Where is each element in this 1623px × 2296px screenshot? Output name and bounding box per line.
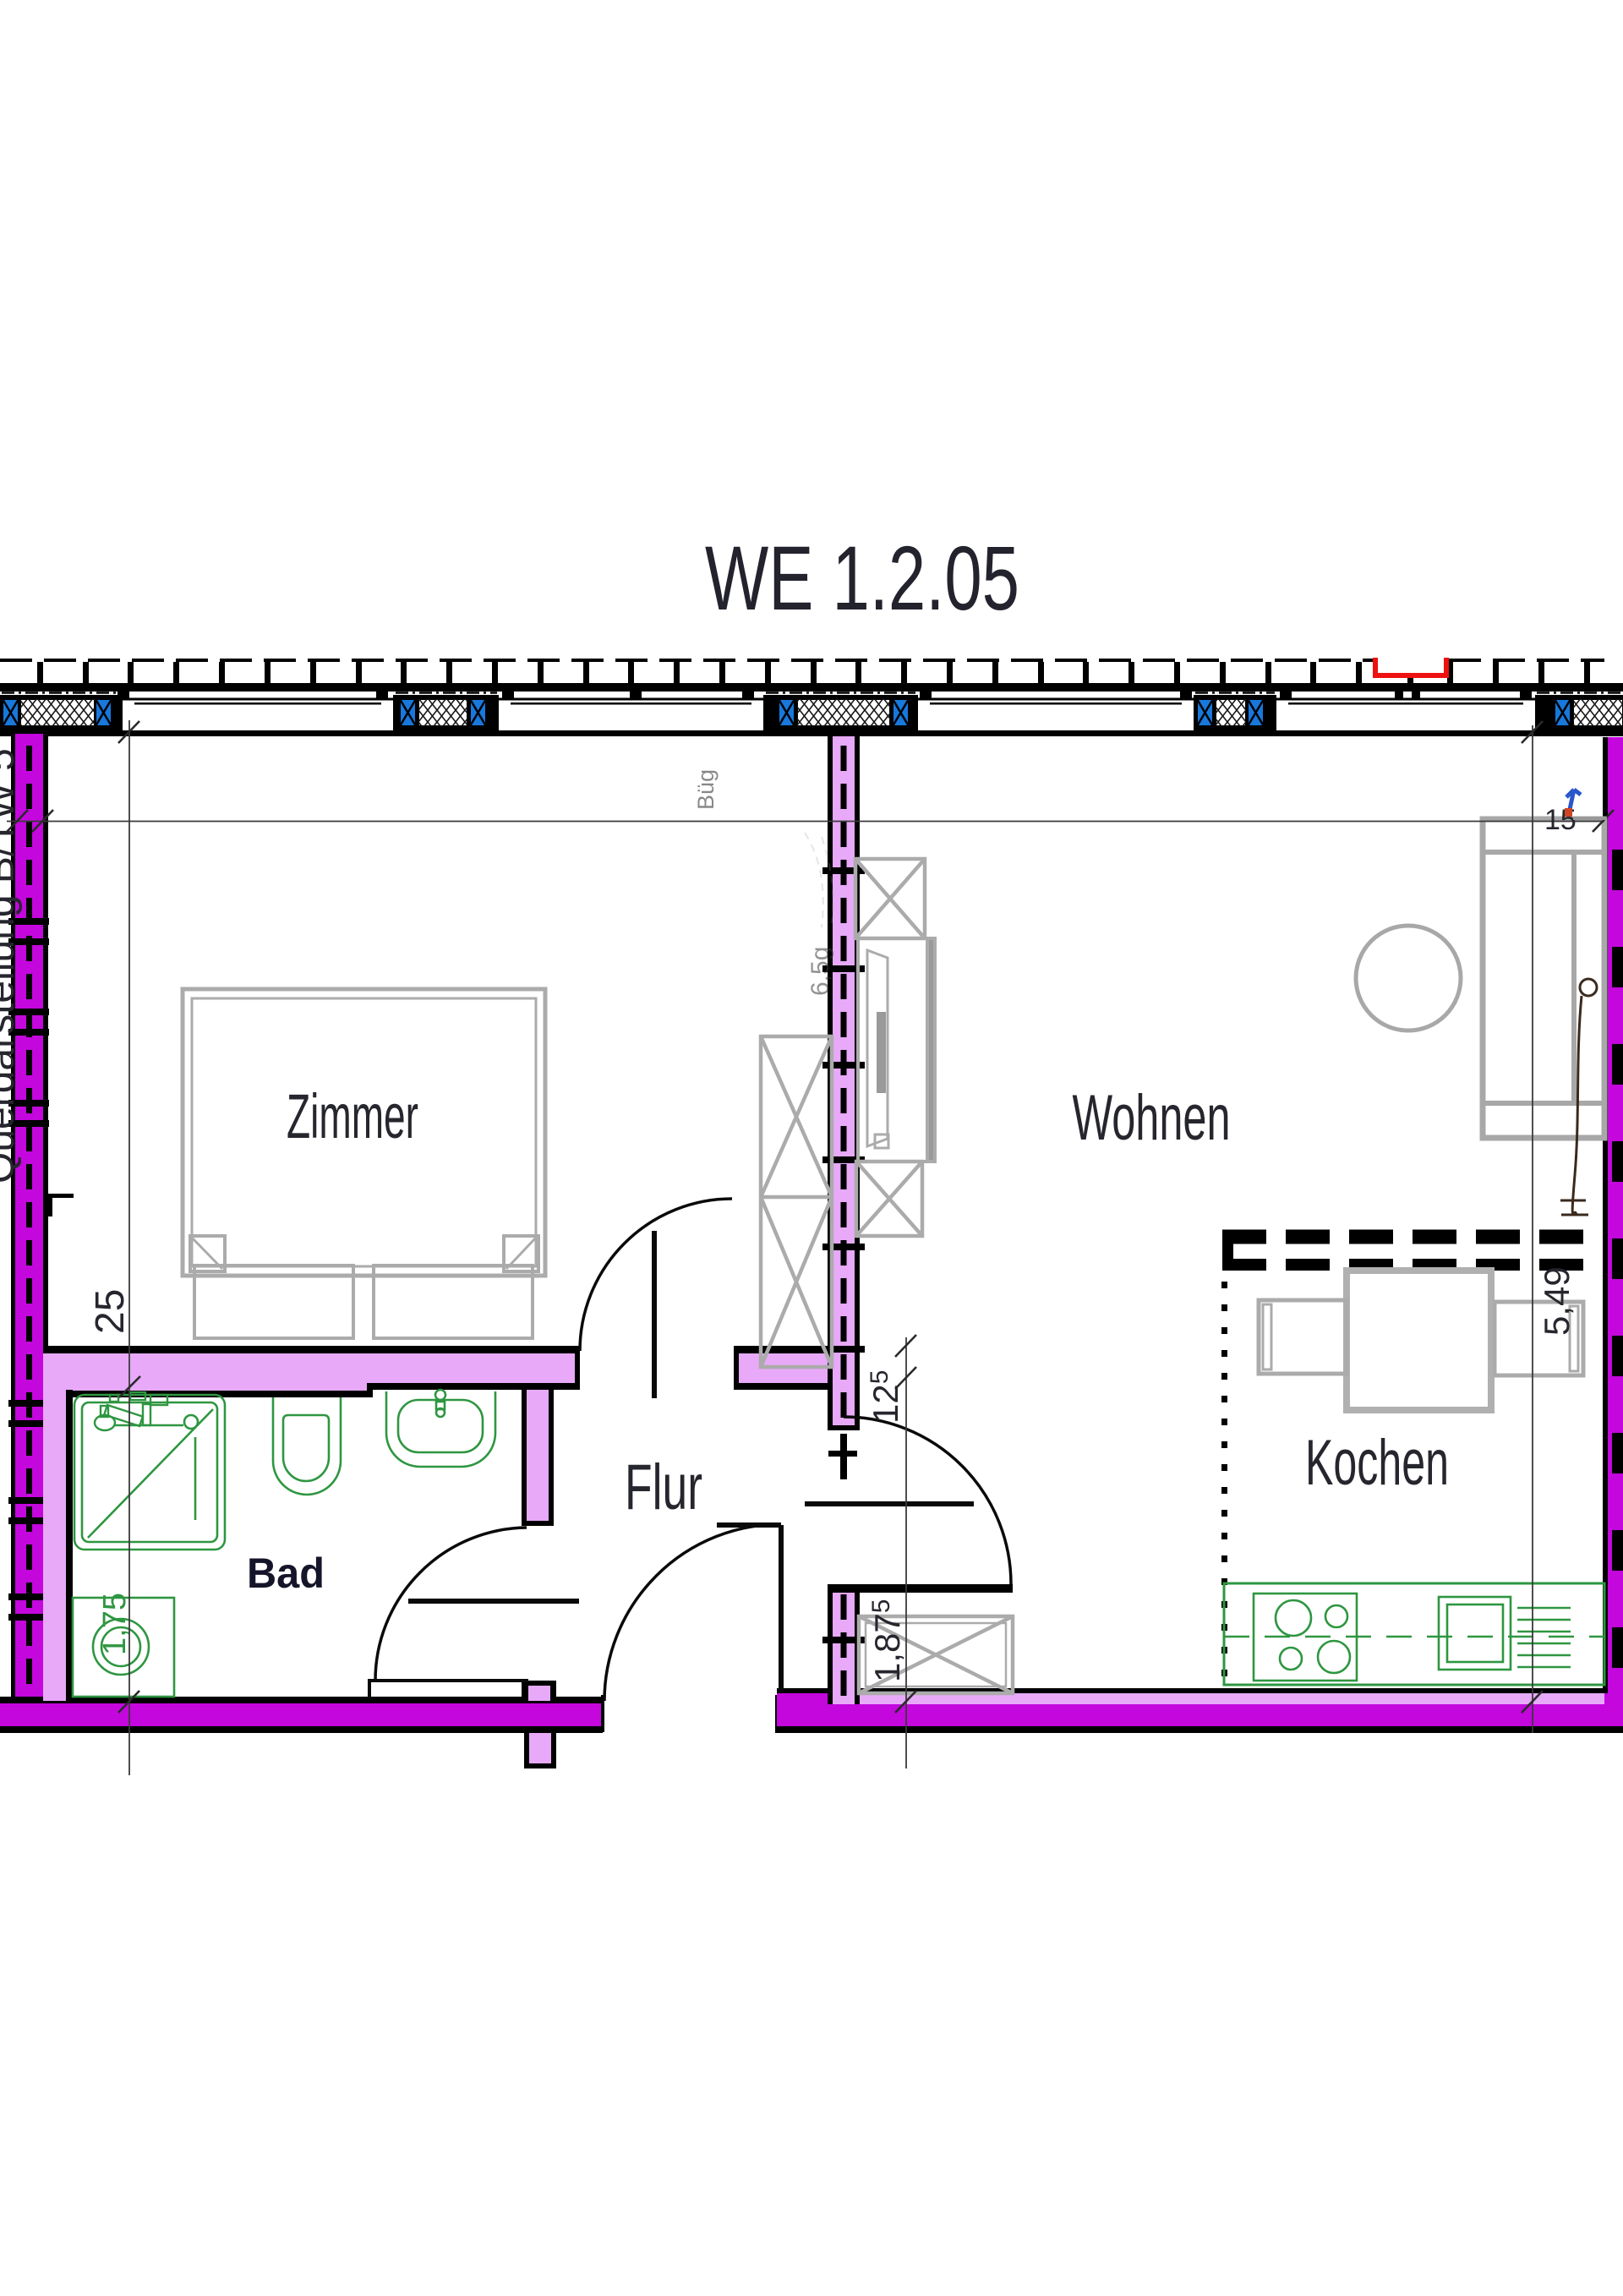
- svg-text:Kochen: Kochen: [1305, 1427, 1449, 1499]
- svg-text:5,49: 5,49: [1537, 1266, 1577, 1336]
- svg-text:Flur: Flur: [625, 1451, 702, 1523]
- svg-text:WE 1.2.05: WE 1.2.05: [705, 527, 1019, 629]
- svg-text:25: 25: [88, 1289, 133, 1334]
- svg-text:Büg: Büg: [693, 769, 719, 810]
- svg-text:Zimmer: Zimmer: [287, 1081, 418, 1151]
- svg-text:1,75: 1,75: [97, 1593, 133, 1655]
- svg-text:Querdarstellung B/TW 5: Querdarstellung B/TW 5: [0, 748, 23, 1184]
- svg-text:6,5g: 6,5g: [806, 947, 834, 996]
- svg-text:Wohnen: Wohnen: [1073, 1082, 1231, 1154]
- svg-text:Bad: Bad: [247, 1550, 325, 1597]
